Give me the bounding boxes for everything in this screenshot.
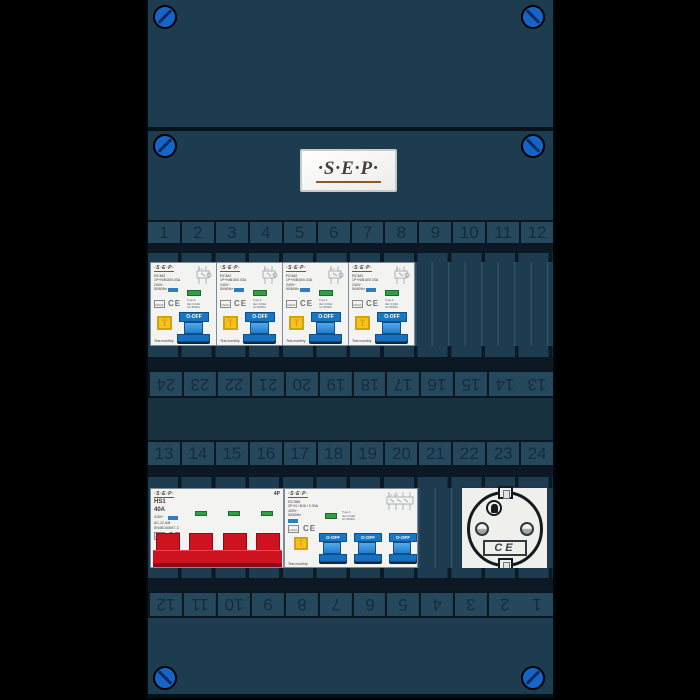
din-slot-number: 9 <box>250 593 284 616</box>
switch-off-label: O-OFF <box>179 312 209 322</box>
din-slot-number: 13 <box>521 372 553 396</box>
din-slot-number: 9 <box>419 222 453 243</box>
switch-toggle[interactable] <box>393 542 411 554</box>
screw-mid-left <box>153 134 177 158</box>
din-slot-number: 6 <box>352 593 386 616</box>
im-label: Im=6000A <box>319 306 332 310</box>
din-slot-number: 3 <box>453 593 487 616</box>
switch-toggle[interactable] <box>323 542 341 554</box>
screw-mid-right <box>521 134 545 158</box>
wiring-diagram-icon: P E <box>194 265 214 285</box>
blank-module-slots <box>415 262 551 346</box>
rail-shadow <box>148 245 553 253</box>
din-slot-number: 2 <box>182 222 216 243</box>
switch-base <box>319 554 347 562</box>
frequency-label: 50/60Hz <box>286 288 299 292</box>
din-slot-number: 11 <box>487 222 521 243</box>
svg-text:P E: P E <box>198 267 203 271</box>
test-note: Test monthly <box>154 340 174 344</box>
switch-base <box>354 554 382 562</box>
switch-toggle[interactable] <box>250 322 269 334</box>
switch-off-label: O-OFF <box>354 533 382 542</box>
switch-base <box>389 554 417 562</box>
rcd-switch[interactable]: O-OFF <box>354 489 382 568</box>
din-cover-segments <box>148 253 553 262</box>
test-note: Test monthly <box>220 340 240 344</box>
earth-clip-top <box>498 486 513 499</box>
main-switch: ·S·E·P· HS1 40A 415V~ AC-22 A/B EN/IEC60… <box>150 488 284 568</box>
screw-top-left <box>153 5 177 29</box>
din-slot-number: 7 <box>352 222 386 243</box>
din-slot-number: 13 <box>148 442 182 465</box>
svg-text:P E: P E <box>330 267 335 271</box>
din-cover-segments <box>148 346 553 357</box>
im-label: Im=6000A <box>385 306 398 310</box>
din-slot-number: 4 <box>250 222 284 243</box>
socket-outlet[interactable]: CE <box>461 487 548 570</box>
switch-toggle[interactable] <box>184 322 203 334</box>
din-slot-number: 12 <box>521 222 553 243</box>
screw-bottom-left <box>153 666 177 690</box>
numbering-strip-top: 123456789101112 <box>148 220 553 245</box>
ce-mark: CE <box>483 540 527 556</box>
svg-text:P E: P E <box>264 267 269 271</box>
din-slot-number: 20 <box>385 442 419 465</box>
status-indicator-window <box>195 511 207 516</box>
din-slot-number: 10 <box>216 593 250 616</box>
blank-module-slots <box>418 488 461 568</box>
brand-logo: ·S·E·P· <box>352 266 372 272</box>
rating-highlight <box>234 288 244 292</box>
brand-logo: ·S·E·P· <box>220 266 240 272</box>
test-button[interactable]: T <box>223 316 238 330</box>
test-button[interactable]: T <box>289 316 304 330</box>
spec-label: 1P+N/B16/0.03A <box>154 279 180 283</box>
status-indicator-window <box>261 511 273 516</box>
switch-off-label: O-OFF <box>319 533 347 542</box>
switch-base <box>375 334 408 342</box>
main-switch-bar[interactable] <box>153 550 282 567</box>
rail-shadow <box>148 357 553 370</box>
test-note: Test monthly <box>286 340 306 344</box>
switch-off-label: O-OFF <box>245 312 275 322</box>
din-slot-number: 21 <box>250 372 284 396</box>
numbering-strip-mid-upper: 242322212019181716151413 <box>148 370 553 398</box>
rail-shadow <box>148 578 553 591</box>
switch-off-label: O-OFF <box>377 312 407 322</box>
breaker-row-bottom: ·S·E·P· HS1 40A 415V~ AC-22 A/B EN/IEC60… <box>150 488 551 568</box>
im-label: Im=6000A <box>187 306 200 310</box>
rail-shadow <box>148 467 553 477</box>
poles-label: 4P <box>274 492 280 496</box>
din-slot-number: 7 <box>318 593 352 616</box>
rcd-switch[interactable]: O-OFF <box>389 489 417 568</box>
rcbo-breaker: ·S·E·P· RCM2 1P+N/B16/0.03A 240V~ 50/60H… <box>348 262 415 346</box>
cover-seam <box>148 127 553 131</box>
din-slot-number: 23 <box>182 372 216 396</box>
standard-label: EN/IEC60947-3 <box>154 527 179 531</box>
numbering-strip-mid-lower: 131415161718192021222324 <box>148 440 553 467</box>
type-info: Type A IΔn=0.03A Im=6000A <box>253 299 266 310</box>
voltage-label: 415V~ <box>154 516 164 520</box>
frequency-label: 50/60Hz <box>154 288 167 292</box>
status-indicator-window <box>253 290 267 296</box>
din-slot-number: 18 <box>352 372 386 396</box>
kema-badge: KEMA <box>154 300 165 308</box>
din-slot-number: 24 <box>521 442 553 465</box>
svg-text:P E: P E <box>396 267 401 271</box>
din-slot-number: 20 <box>284 372 318 396</box>
type-info: Type A IΔn=0.03A Im=6000A <box>187 299 200 310</box>
din-slot-number: 17 <box>385 372 419 396</box>
frequency-label: 50/60Hz <box>352 288 365 292</box>
sep-logo-text: ·S·E·P· <box>316 158 381 183</box>
status-indicator-window <box>385 290 399 296</box>
din-slot-number: 17 <box>284 442 318 465</box>
test-note: Test monthly <box>288 563 308 567</box>
center-cover-gap <box>148 398 553 440</box>
status-indicator-window <box>187 290 201 296</box>
din-slot-number: 24 <box>148 372 182 396</box>
din-slot-number: 10 <box>453 222 487 243</box>
din-slot-number: 16 <box>250 442 284 465</box>
din-slot-number: 11 <box>182 593 216 616</box>
status-indicator-window <box>319 290 333 296</box>
ce-mark: CE <box>234 300 247 308</box>
din-slot-number: 14 <box>487 372 521 396</box>
rating-highlight <box>366 288 376 292</box>
wiring-diagram-icon: P E <box>392 265 412 285</box>
rcbo-breaker: ·S·E·P· RCM2 1P+N/B16/0.03A 240V~ 50/60H… <box>216 262 283 346</box>
rcbo-breaker: ·S·E·P· RCM2 1P+N/B16/0.03A 240V~ 50/60H… <box>282 262 349 346</box>
din-slot-number: 2 <box>487 593 521 616</box>
din-slot-number: 5 <box>385 593 419 616</box>
switch-toggle[interactable] <box>316 322 335 334</box>
frequency-label: 50/60Hz <box>220 288 233 292</box>
model-label: HS1 <box>154 500 166 504</box>
kema-badge: KEMA <box>286 300 297 308</box>
status-indicator-window <box>228 511 240 516</box>
din-slot-number: 1 <box>148 222 182 243</box>
wiring-diagram-icon: P E <box>260 265 280 285</box>
din-slot-number: 6 <box>318 222 352 243</box>
brand-logo: ·S·E·P· <box>154 492 174 498</box>
din-slot-number: 15 <box>453 372 487 396</box>
rating-label: 40A <box>154 508 165 512</box>
test-button[interactable]: T <box>355 316 370 330</box>
kema-badge: KEMA <box>220 300 231 308</box>
switch-base <box>309 334 342 342</box>
din-slot-number: 5 <box>284 222 318 243</box>
switch-off-label: O-OFF <box>389 533 417 542</box>
utilization-label: AC-22 A/B <box>154 522 170 526</box>
din-slot-number: 19 <box>352 442 386 465</box>
test-note: Test monthly <box>352 340 372 344</box>
screw-bottom-right <box>521 666 545 690</box>
din-slot-number: 1 <box>521 593 553 616</box>
din-slot-number: 8 <box>284 593 318 616</box>
spec-label: 1P+N/B16/0.03A <box>220 279 246 283</box>
brand-logo: ·S·E·P· <box>286 266 306 272</box>
rating-highlight <box>168 516 178 520</box>
rating-highlight <box>300 288 310 292</box>
switch-base <box>177 334 210 342</box>
spec-label: 1P+N/B16/0.03A <box>286 279 312 283</box>
din-cover-segments <box>148 568 553 578</box>
ce-mark: CE <box>366 300 379 308</box>
socket-pin-hole-left <box>475 522 489 536</box>
im-label: Im=6000A <box>253 306 266 310</box>
test-button[interactable]: T <box>157 316 172 330</box>
din-slot-number: 3 <box>216 222 250 243</box>
distribution-board-panel: ·S·E·P· 123456789101112 ·S·E·P· RCM2 1P+… <box>148 0 553 697</box>
numbering-strip-bottom: 121110987654321 <box>148 591 553 618</box>
switch-toggle[interactable] <box>358 542 376 554</box>
ce-mark: CE <box>168 300 181 308</box>
approval-stamp-icon <box>486 500 502 516</box>
socket-pin-hole-right <box>520 522 534 536</box>
screw-top-right <box>521 5 545 29</box>
rating-highlight <box>168 288 178 292</box>
rcd-breaker: ·S·E·P· RC386 3P+N / B16 / 0.03A 400V~ 5… <box>284 488 418 568</box>
din-slot-number: 21 <box>419 442 453 465</box>
type-info: Type A IΔn=0.03A Im=6000A <box>385 299 398 310</box>
brand-logo: ·S·E·P· <box>154 266 174 272</box>
din-slot-number: 15 <box>216 442 250 465</box>
din-slot-number: 18 <box>318 442 352 465</box>
din-slot-number: 12 <box>148 593 182 616</box>
wiring-diagram-icon: P E <box>326 265 346 285</box>
din-slot-number: 19 <box>318 372 352 396</box>
din-slot-number: 22 <box>453 442 487 465</box>
spec-label: 1P+N/B16/0.03A <box>352 279 378 283</box>
rcd-switch[interactable]: O-OFF <box>319 489 347 568</box>
rcbo-breaker: ·S·E·P· RCM2 1P+N/B16/0.03A 240V~ 50/60H… <box>150 262 217 346</box>
din-slot-number: 23 <box>487 442 521 465</box>
kema-badge: KEMA <box>352 300 363 308</box>
din-slot-number: 22 <box>216 372 250 396</box>
din-slot-number: 14 <box>182 442 216 465</box>
type-info: Type A IΔn=0.03A Im=6000A <box>319 299 332 310</box>
rcd-switch-group: O-OFF O-OFF O-OFF <box>285 489 418 568</box>
switch-toggle[interactable] <box>382 322 401 334</box>
din-slot-number: 16 <box>419 372 453 396</box>
switch-off-label: O-OFF <box>311 312 341 322</box>
cover-seam <box>148 694 553 697</box>
din-slot-number: 8 <box>385 222 419 243</box>
ce-mark: CE <box>300 300 313 308</box>
din-slot-number: 4 <box>419 593 453 616</box>
switch-base <box>243 334 276 342</box>
sep-brand-label: ·S·E·P· <box>300 149 397 192</box>
